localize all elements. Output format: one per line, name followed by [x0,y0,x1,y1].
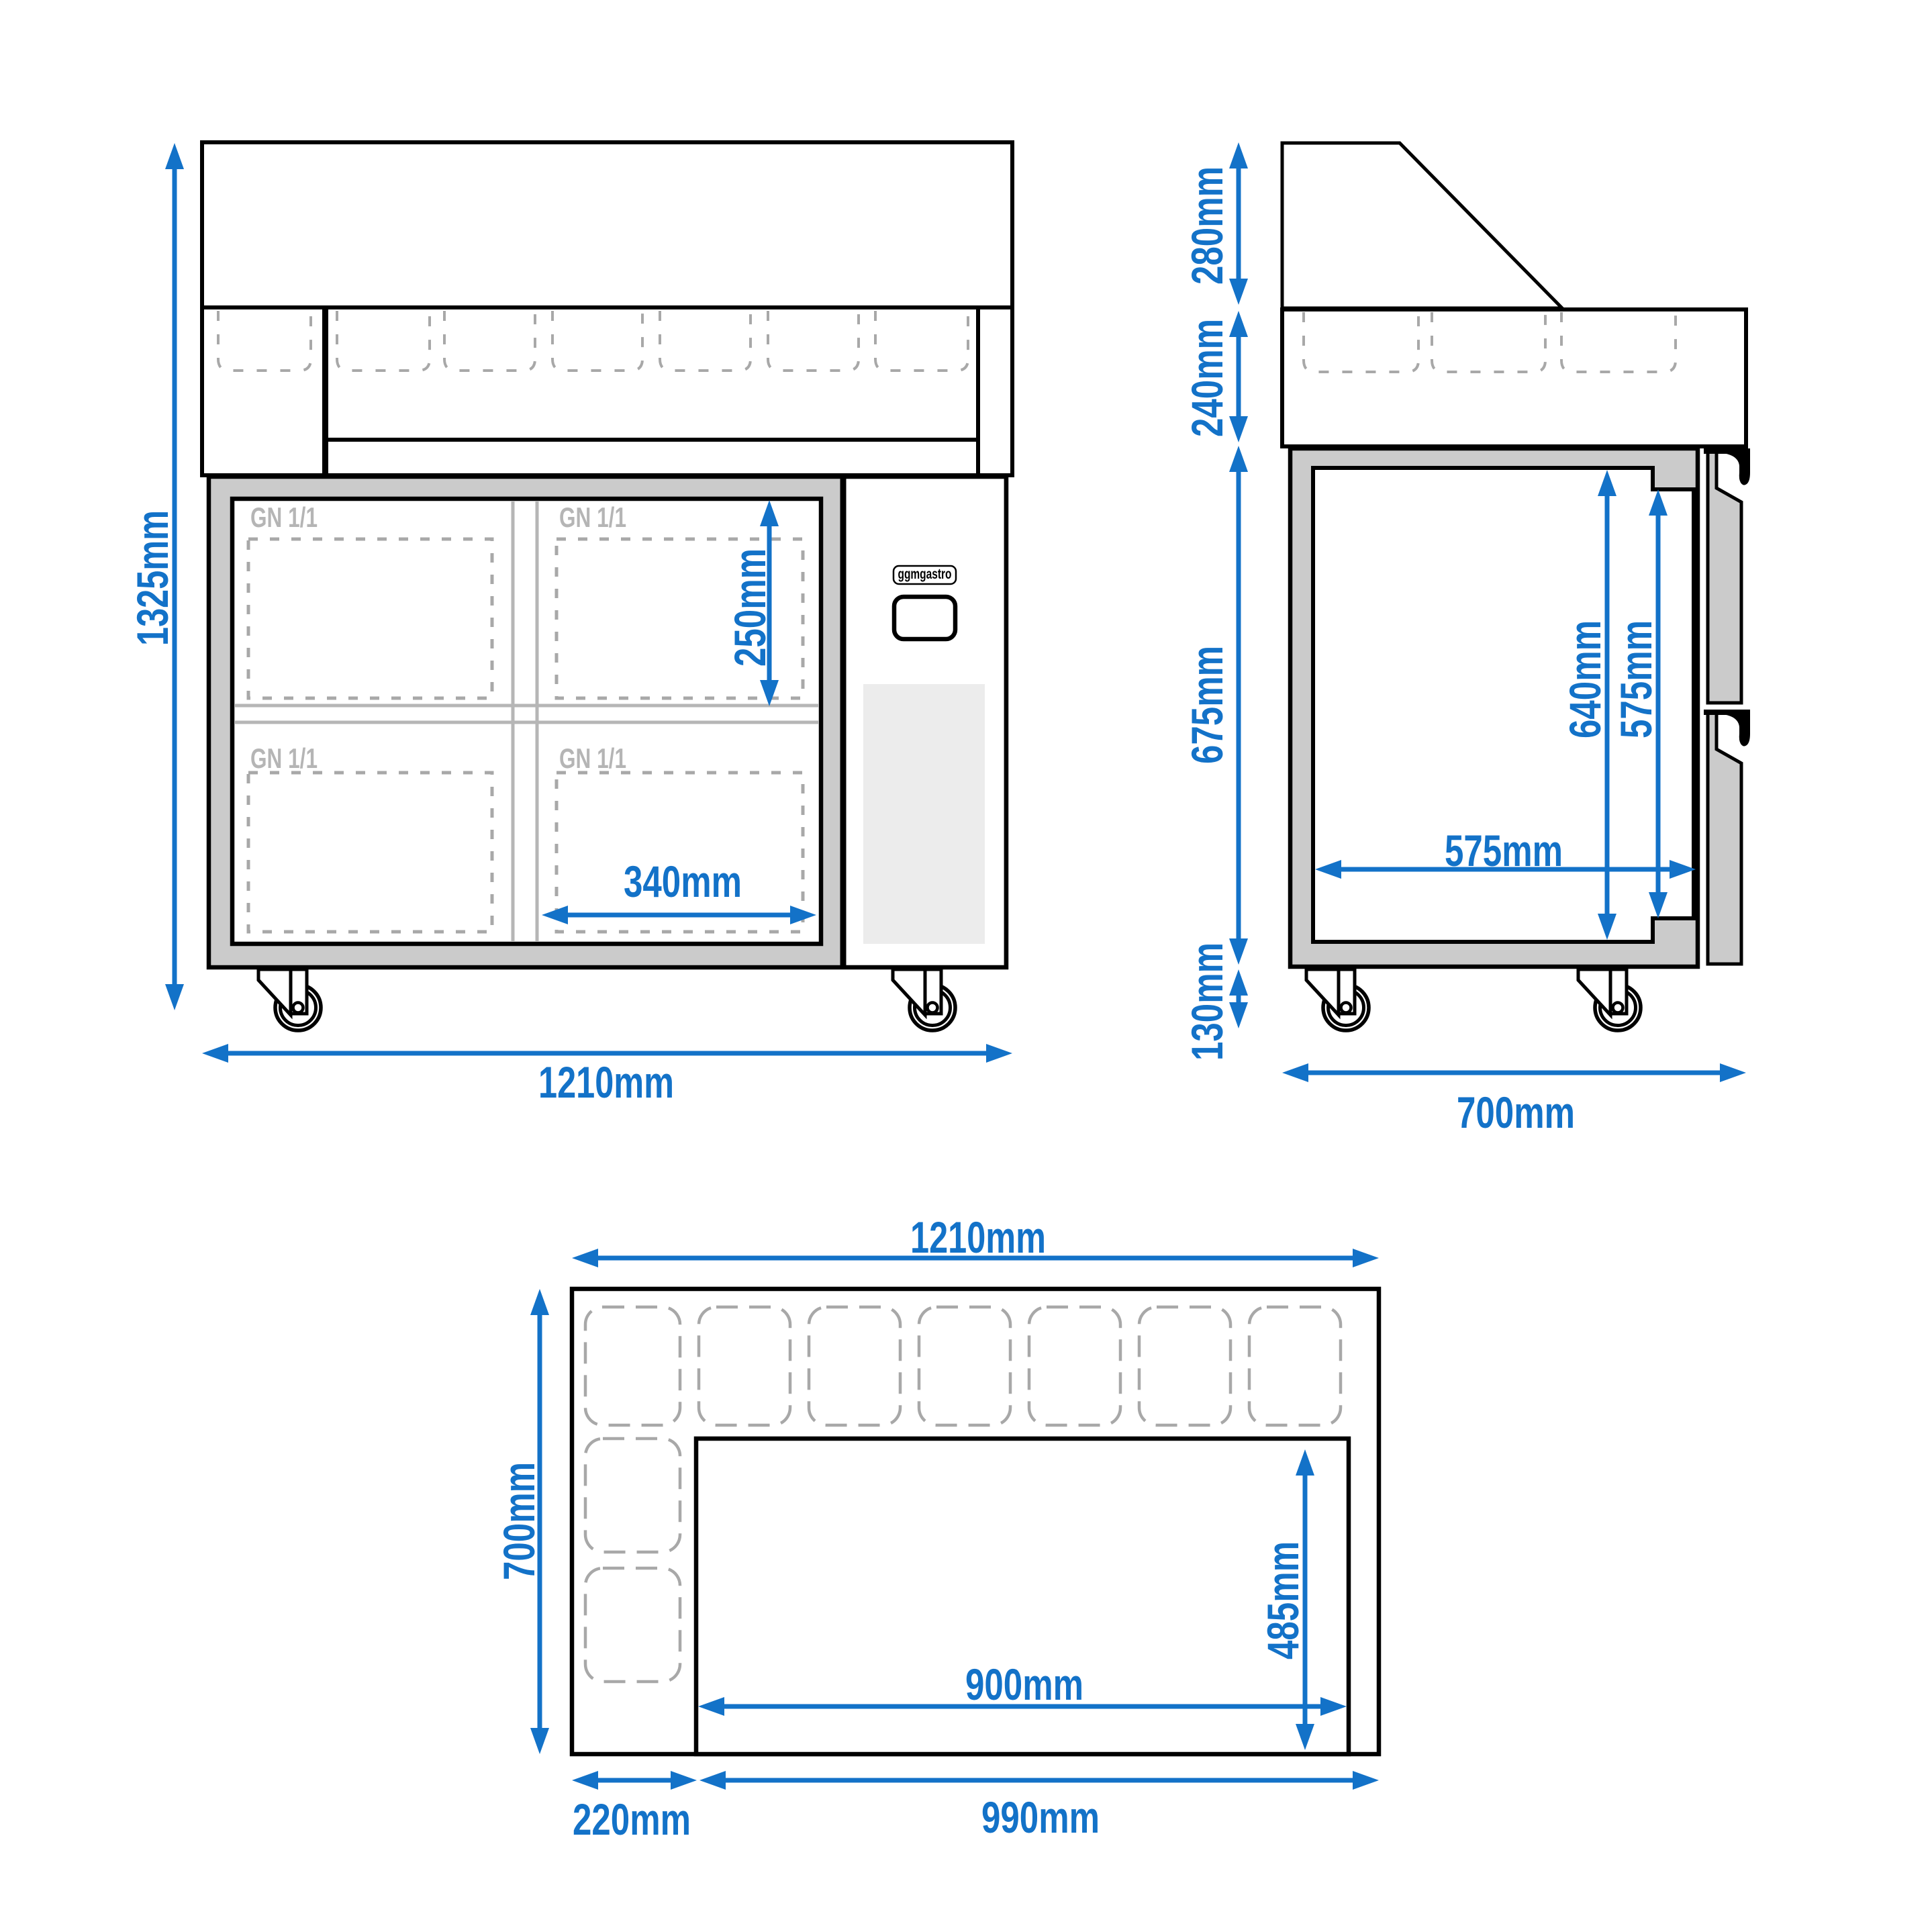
svg-text:575mm: 575mm [1445,826,1563,875]
svg-text:1325mm: 1325mm [128,510,177,646]
svg-text:575mm: 575mm [1611,620,1661,738]
svg-text:280mm: 280mm [1182,166,1232,285]
svg-text:640mm: 640mm [1560,620,1610,738]
svg-text:250mm: 250mm [725,548,775,667]
svg-text:675mm: 675mm [1182,646,1232,764]
svg-text:340mm: 340mm [624,857,742,906]
svg-text:700mm: 700mm [1457,1088,1575,1137]
svg-text:GN 1/1: GN 1/1 [250,742,318,774]
svg-text:GN 1/1: GN 1/1 [250,501,318,533]
svg-text:485mm: 485mm [1258,1541,1308,1659]
svg-text:900mm: 900mm [965,1659,1083,1709]
svg-text:130mm: 130mm [1182,943,1232,1061]
svg-text:GN 1/1: GN 1/1 [559,742,626,774]
svg-text:240mm: 240mm [1182,319,1232,437]
svg-text:1210mm: 1210mm [538,1057,674,1107]
svg-text:ggmgastro: ggmgastro [898,567,952,582]
svg-text:700mm: 700mm [494,1462,544,1580]
svg-text:1210mm: 1210mm [910,1212,1046,1262]
svg-text:990mm: 990mm [981,1792,1100,1842]
svg-text:220mm: 220mm [573,1794,691,1844]
svg-text:GN 1/1: GN 1/1 [559,501,626,533]
